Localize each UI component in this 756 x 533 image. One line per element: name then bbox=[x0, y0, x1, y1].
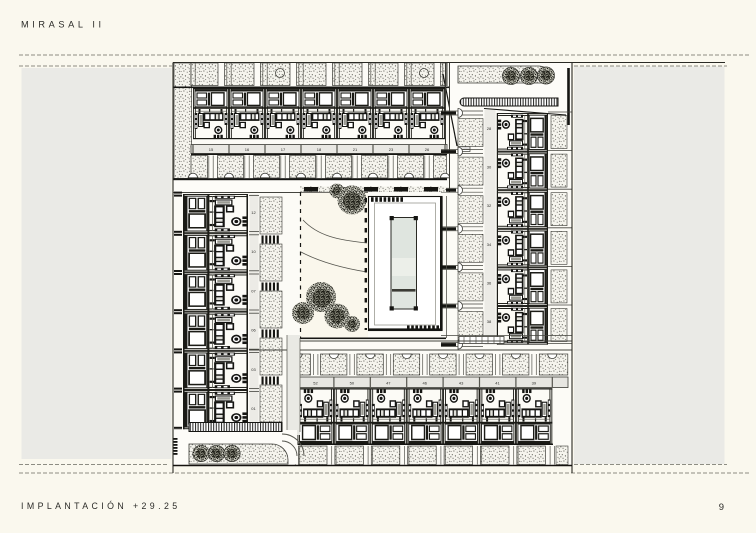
svg-text:47: 47 bbox=[386, 381, 391, 386]
svg-text:43: 43 bbox=[459, 381, 464, 386]
svg-text:9: 9 bbox=[719, 502, 724, 513]
svg-text:52: 52 bbox=[313, 381, 318, 386]
svg-text:18: 18 bbox=[317, 147, 322, 152]
svg-text:06: 06 bbox=[251, 328, 256, 333]
svg-text:MIRASAL II: MIRASAL II bbox=[21, 20, 105, 30]
svg-text:46: 46 bbox=[422, 381, 427, 386]
svg-text:16: 16 bbox=[245, 147, 250, 152]
svg-text:03: 03 bbox=[251, 367, 256, 372]
svg-text:39: 39 bbox=[532, 381, 537, 386]
svg-text:32: 32 bbox=[487, 203, 492, 208]
svg-text:23: 23 bbox=[389, 147, 394, 152]
svg-text:41: 41 bbox=[495, 381, 500, 386]
svg-text:34: 34 bbox=[487, 242, 492, 247]
svg-text:21: 21 bbox=[353, 147, 358, 152]
svg-text:26: 26 bbox=[425, 147, 430, 152]
svg-text:IMPLANTACIÓN +29.25: IMPLANTACIÓN +29.25 bbox=[21, 501, 181, 511]
svg-text:07: 07 bbox=[251, 288, 256, 293]
svg-text:10: 10 bbox=[251, 249, 256, 254]
svg-text:12: 12 bbox=[251, 210, 256, 215]
svg-text:15: 15 bbox=[209, 147, 214, 152]
svg-text:50: 50 bbox=[350, 381, 355, 386]
svg-text:01: 01 bbox=[251, 406, 256, 411]
svg-text:30: 30 bbox=[487, 165, 492, 170]
svg-text:36: 36 bbox=[487, 280, 492, 285]
svg-text:28: 28 bbox=[487, 126, 492, 131]
svg-text:38: 38 bbox=[487, 319, 492, 324]
svg-text:17: 17 bbox=[281, 147, 286, 152]
